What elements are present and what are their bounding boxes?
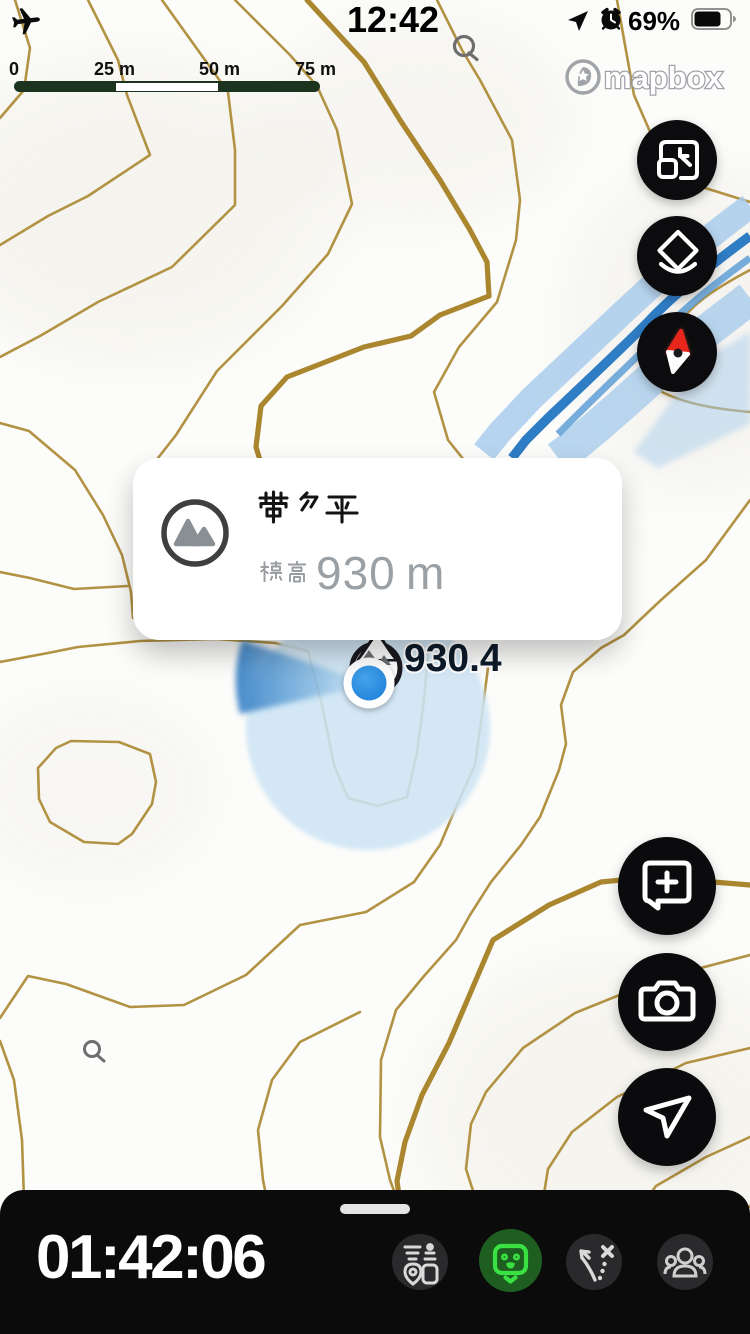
svg-text:mapbox: mapbox: [604, 60, 724, 95]
svg-text:930.4: 930.4: [404, 637, 502, 680]
